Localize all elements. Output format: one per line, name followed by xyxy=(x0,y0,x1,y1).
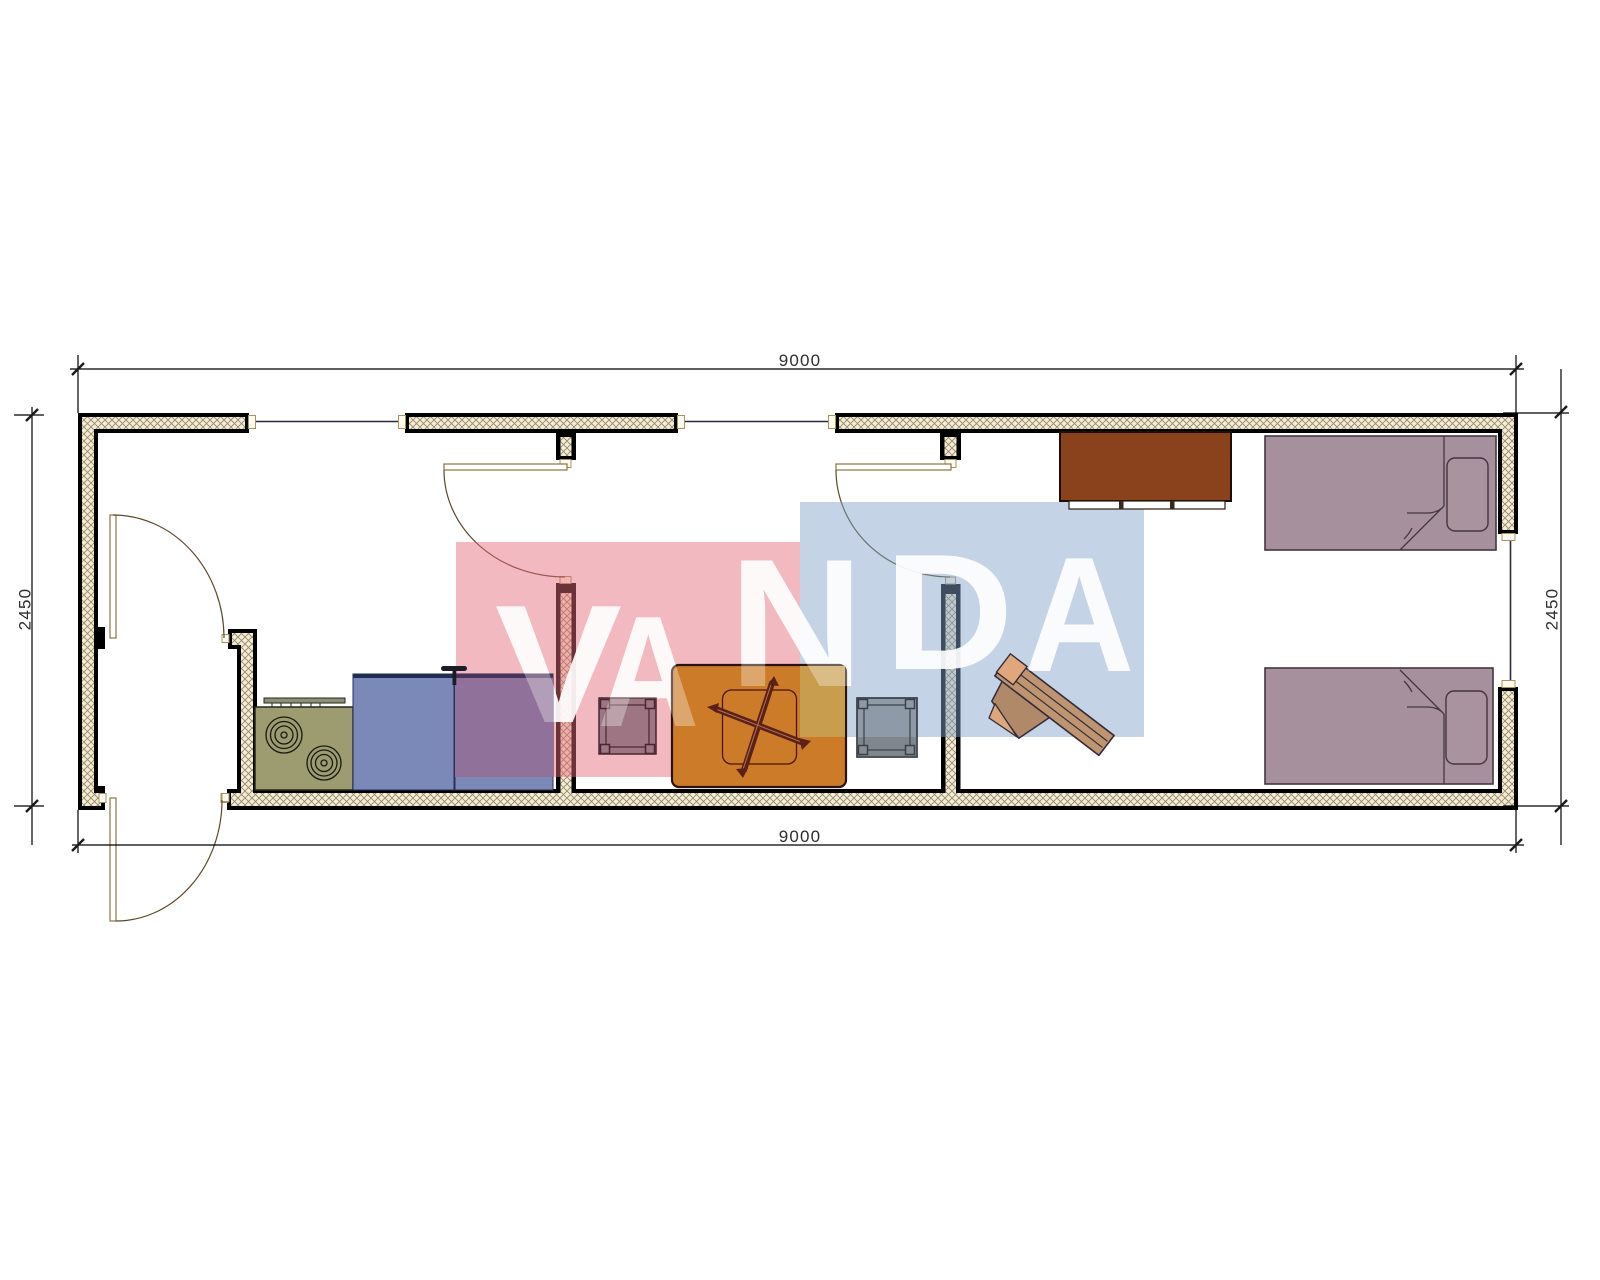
svg-text:N: N xyxy=(729,522,864,726)
svg-text:A: A xyxy=(597,583,699,760)
svg-text:D: D xyxy=(884,520,1014,705)
svg-text:A: A xyxy=(1024,523,1135,706)
svg-text:2450: 2450 xyxy=(16,588,35,631)
svg-text:9000: 9000 xyxy=(779,827,822,846)
svg-text:9000: 9000 xyxy=(779,351,822,370)
svg-text:2450: 2450 xyxy=(1543,588,1562,631)
